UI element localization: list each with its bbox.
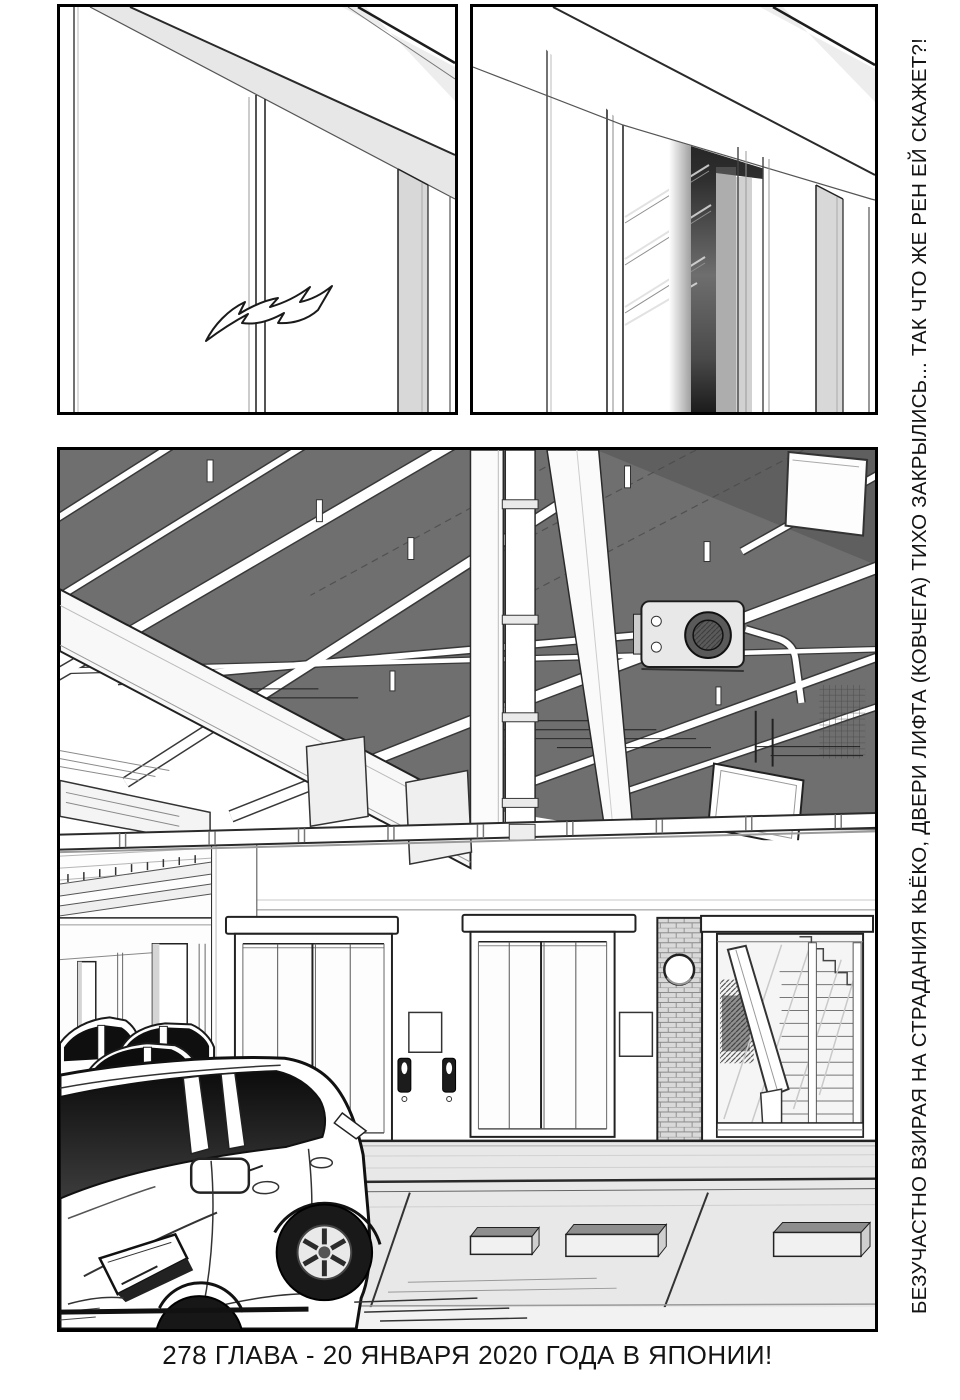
elevator-right — [463, 915, 636, 1137]
duct-fin — [306, 737, 368, 827]
panel3-art — [60, 450, 875, 1329]
duct-fin — [406, 771, 472, 865]
door-handle — [310, 1158, 332, 1168]
wheel-stop — [774, 1222, 870, 1256]
elevator-notice-sign — [409, 1012, 442, 1052]
panel2-art — [473, 7, 875, 412]
stairwell — [701, 916, 873, 1137]
wheel-stop — [470, 1227, 539, 1254]
side-mirror — [191, 1159, 249, 1193]
manga-panel-elevator-closed — [57, 4, 458, 415]
manga-panel-parking-garage — [57, 447, 878, 1332]
manga-page: { "page": { "side_text": "БЕЗУЧАСТНО ВЗИ… — [0, 0, 960, 1400]
chapter-caption: 278 ГЛАВА - 20 ЯНВАРЯ 2020 ГОДА В ЯПОНИИ… — [57, 1340, 878, 1371]
manga-panel-elevator-closing — [470, 4, 878, 415]
brick-column — [657, 918, 702, 1141]
wall-sign — [620, 1012, 653, 1056]
ceiling-fixture-box — [786, 452, 868, 536]
ceiling-junction-box — [633, 601, 743, 671]
panel1-art — [60, 7, 455, 412]
wheel-stop — [566, 1224, 666, 1256]
side-vertical-text: БЕЗУЧАСТНО ВЗИРАЯ НА СТРАДАНИЯ КЬЁКО, ДВ… — [899, 8, 941, 1344]
